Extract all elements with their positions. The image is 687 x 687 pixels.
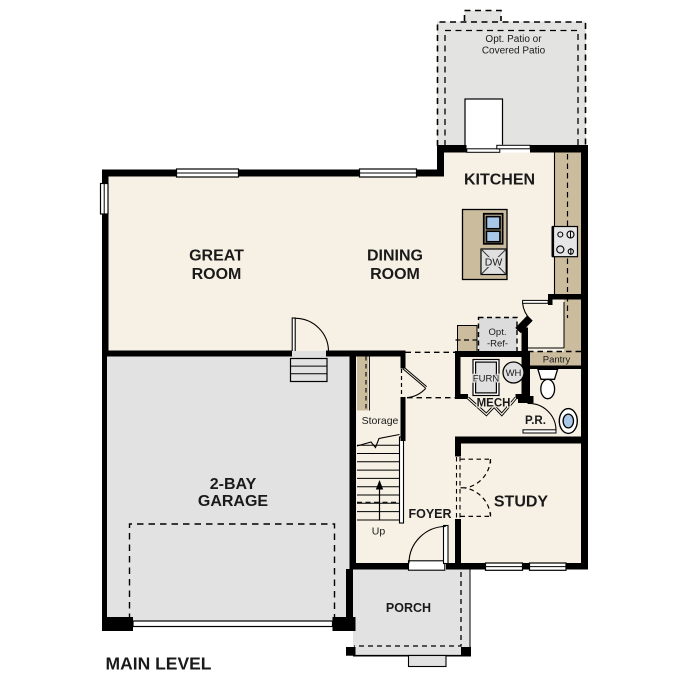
svg-text:FOYER: FOYER	[408, 507, 451, 521]
svg-text:Opt.: Opt.	[489, 327, 507, 338]
svg-text:Pantry: Pantry	[543, 355, 571, 366]
svg-text:DINING: DINING	[367, 248, 423, 265]
svg-text:PORCH: PORCH	[386, 601, 431, 615]
svg-text:Storage: Storage	[362, 415, 399, 427]
svg-text:STUDY: STUDY	[494, 494, 549, 511]
svg-text:FURN: FURN	[473, 374, 500, 385]
svg-text:MAIN LEVEL: MAIN LEVEL	[106, 654, 212, 674]
svg-text:WH: WH	[506, 368, 522, 379]
svg-text:GARAGE: GARAGE	[198, 493, 269, 510]
svg-text:ROOM: ROOM	[192, 266, 242, 283]
svg-text:2-BAY: 2-BAY	[210, 476, 257, 493]
svg-text:-Ref-: -Ref-	[487, 339, 508, 350]
svg-text:KITCHEN: KITCHEN	[464, 172, 535, 189]
svg-text:Covered Patio: Covered Patio	[482, 46, 546, 57]
svg-text:Up: Up	[372, 526, 386, 538]
svg-text:GREAT: GREAT	[189, 248, 244, 265]
svg-text:DW: DW	[485, 256, 503, 268]
svg-text:MECH: MECH	[477, 398, 511, 410]
svg-text:P.R.: P.R.	[525, 415, 546, 427]
svg-text:Opt. Patio or: Opt. Patio or	[485, 34, 542, 45]
svg-text:ROOM: ROOM	[370, 266, 420, 283]
